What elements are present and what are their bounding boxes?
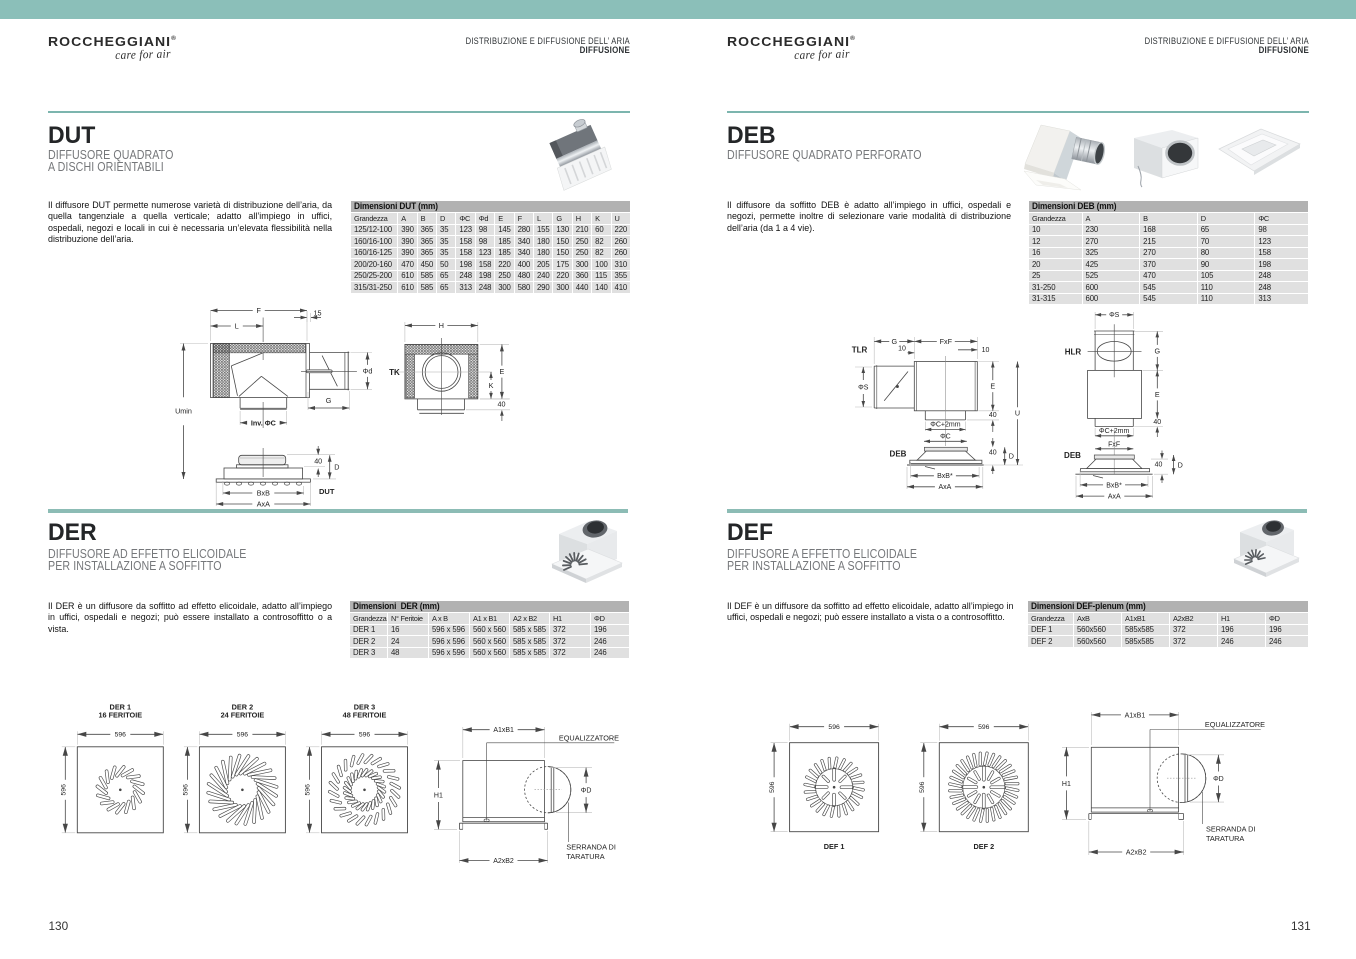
svg-text:ΦS: ΦS [1109,312,1120,319]
svg-text:A1xB1: A1xB1 [493,727,514,734]
svg-text:AxA: AxA [1108,494,1121,501]
svg-text:40: 40 [989,450,997,457]
svg-text:H: H [439,321,444,330]
svg-text:AxA: AxA [938,484,951,491]
svg-text:40: 40 [498,400,506,409]
svg-text:596: 596 [305,784,312,796]
svg-text:10: 10 [898,346,906,353]
svg-text:SERRANDA DI: SERRANDA DI [566,843,615,852]
svg-text:40: 40 [1153,419,1161,426]
svg-text:TARATURA: TARATURA [1206,834,1244,843]
svg-text:F: F [257,306,262,315]
svg-text:BxB: BxB [257,488,270,497]
svg-text:D: D [1178,461,1183,470]
svg-text:AxA: AxA [257,499,270,508]
svg-text:596: 596 [828,724,840,731]
svg-text:EQUALIZZATORE: EQUALIZZATORE [1205,720,1265,729]
svg-text:G: G [1155,346,1161,355]
svg-text:G: G [326,396,332,405]
svg-text:K: K [489,381,494,390]
svg-text:SERRANDA DI: SERRANDA DI [1206,825,1255,834]
svg-text:E: E [1155,390,1160,399]
svg-text:DEB: DEB [890,450,907,459]
svg-text:DUT: DUT [319,487,335,496]
svg-text:596: 596 [978,724,990,731]
svg-text:596: 596 [769,781,776,793]
svg-text:596: 596 [237,732,249,739]
svg-text:H1: H1 [1062,781,1071,788]
svg-text:A2xB2: A2xB2 [493,858,514,865]
svg-text:10: 10 [982,347,990,354]
svg-text:BxB*: BxB* [1106,482,1122,489]
svg-text:596: 596 [359,732,371,739]
svg-text:40: 40 [314,456,322,465]
svg-text:D: D [334,462,339,471]
svg-text:15: 15 [314,308,322,317]
svg-text:FxF: FxF [940,337,953,346]
svg-text:TK: TK [389,368,400,377]
svg-text:EQUALIZZATORE: EQUALIZZATORE [559,733,619,742]
svg-text:596: 596 [182,784,189,796]
svg-text:U: U [1015,409,1020,418]
svg-text:L: L [235,321,239,330]
svg-text:A1xB1: A1xB1 [1125,712,1146,719]
svg-text:A2xB2: A2xB2 [1126,849,1147,856]
svg-text:ΦS: ΦS [858,384,869,391]
svg-text:DEB: DEB [1064,451,1081,460]
svg-text:E: E [990,382,995,391]
svg-text:ΦC: ΦC [940,434,951,441]
svg-text:Umin: Umin [175,407,192,416]
svg-text:TLR: TLR [852,346,868,355]
svg-text:H1: H1 [434,792,443,799]
svg-text:ΦD: ΦD [581,788,592,795]
svg-text:16 FERITOIE: 16 FERITOIE [98,710,142,719]
svg-text:Inv. ΦC: Inv. ΦC [251,418,276,427]
svg-text:596: 596 [60,784,67,796]
svg-text:ΦC+2mm: ΦC+2mm [930,422,960,429]
svg-text:HLR: HLR [1065,347,1082,356]
svg-text:40: 40 [989,412,997,419]
svg-text:BxB*: BxB* [937,473,953,480]
svg-text:G: G [891,337,897,346]
svg-text:TARATURA: TARATURA [566,852,604,861]
svg-text:ΦD: ΦD [1213,776,1224,783]
svg-text:Φd: Φd [363,366,373,375]
svg-text:596: 596 [115,732,127,739]
svg-text:596: 596 [919,781,926,793]
svg-text:DEF 1: DEF 1 [824,842,845,851]
svg-text:D: D [1009,452,1014,461]
svg-text:24 FERITOIE: 24 FERITOIE [221,710,265,719]
svg-text:E: E [500,367,505,376]
svg-text:40: 40 [1155,462,1163,469]
svg-text:DEF 2: DEF 2 [973,842,994,851]
svg-text:48 FERITOIE: 48 FERITOIE [343,710,387,719]
